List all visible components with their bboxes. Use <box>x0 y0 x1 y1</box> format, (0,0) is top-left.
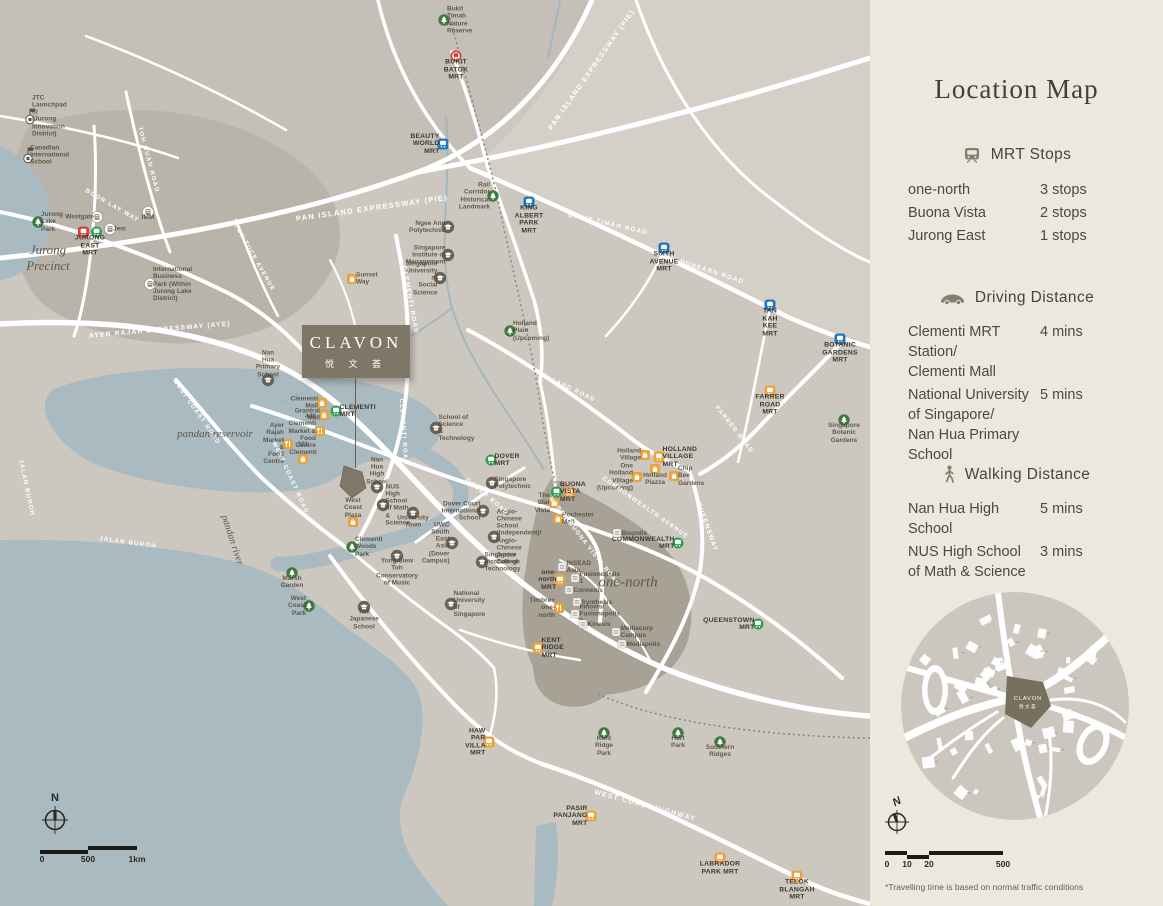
mrt-station-botanic-gardens-mrt: BOTANIC GARDENS MRT <box>835 334 846 345</box>
region-label: one-north <box>598 575 657 592</box>
poi-jurong-lake-park: Jurong Lake Park <box>32 216 44 228</box>
mrt-station-one-north-mrt: one-north MRT <box>555 575 566 586</box>
poi-national-university-of-singapore: National University of Singapore <box>445 598 458 611</box>
compass-north-label: N <box>891 795 904 809</box>
marker-label: The Japanese School <box>349 609 379 631</box>
poi-connexis: Connexis <box>565 586 574 595</box>
marker-label: Timbre+ one-north <box>530 597 555 619</box>
mrt-station-telok-blangah-mrt: TELOK BLANGAH MRT <box>792 871 803 882</box>
marker-label: Bukit Timah Nature Reserve <box>447 5 472 34</box>
mrt-station-clementi-mrt: CLEMENTI MRT <box>331 406 342 417</box>
row-label: National University of Singapore/ Nan Hu… <box>908 385 1036 465</box>
mall-icon <box>317 398 327 408</box>
marker-label: SIXTH AVENUE MRT <box>649 251 678 274</box>
poi-southern-ridges: Southern Ridges <box>714 736 726 748</box>
poi-jtc-launchpad-jurong-innovation-district: JTC Launchpad @ (Jurong Innovation Distr… <box>23 108 37 125</box>
poi-west-coast-park: West Coast Park <box>303 600 315 612</box>
car-icon <box>939 291 966 306</box>
marker-label: Mediacorp Campus <box>621 625 654 640</box>
marker-label: Ngee Ann Polytechnic <box>409 220 445 235</box>
mrt-station-king-albert-park-mrt: KING ALBERT PARK MRT <box>524 197 535 208</box>
marker-label: COMMONWEALTH MRT <box>612 535 675 550</box>
scale-tick: 20 <box>924 859 933 869</box>
marker-label: Hort Park <box>671 735 685 750</box>
row-value: 5 mins <box>1040 385 1083 405</box>
distance-row: one-north3 stops <box>870 180 1163 200</box>
bldg-icon <box>571 574 580 583</box>
poi-jem: Jem <box>104 223 116 235</box>
compass-north-label: N <box>51 792 59 804</box>
poi-mediacorp-campus: Mediacorp Campus <box>612 628 621 637</box>
bldg-icon <box>613 529 622 538</box>
poi-the-japanese-school: The Japanese School <box>358 601 371 614</box>
poi-anglo-chinese-school-independent-anglo-c: Anglo-Chinese School (Independent)/ Angl… <box>488 531 501 544</box>
poi-kinesis: Kinesis <box>579 620 588 629</box>
poi-fusionopolis-1: Fusionopolis 1 <box>571 574 580 583</box>
marker-label: Jurong Lake Park <box>41 211 63 233</box>
site-vicinity-inset-map: CLAVON 悦文荟 <box>901 592 1129 820</box>
marker-label: Holland Plain (Upcoming) <box>513 320 549 342</box>
walking-distance-rows: Nan Hua High School5 minsNUS High School… <box>870 499 1163 585</box>
section-walking-distance: Walking Distance Nan Hua High School5 mi… <box>870 465 1163 484</box>
marker-label: Sunset Way <box>356 272 378 287</box>
marker-label: Mediapolis <box>627 640 661 647</box>
distance-row: Buona Vista2 stops <box>870 203 1163 223</box>
distance-row: National University of Singapore/ Nan Hu… <box>870 385 1163 465</box>
poi-marsh-garden: Marsh Garden <box>286 567 298 579</box>
poi-yong-siew-toh-conservatory-of-music: Yong Siew Toh Conservatory of Music <box>391 550 404 563</box>
mrt-stops-heading: MRT Stops <box>991 146 1072 164</box>
mrt-station-bukit-batok-mrt: BUKIT BATOK MRT <box>451 51 462 62</box>
clavon-location-map-page: { "colors":{"map_bg":"#ccc8c0","sidebar_… <box>0 0 1163 906</box>
poi-ngee-ann-polytechnic: Ngee Ann Polytechnic <box>442 221 455 234</box>
row-value: 1 stops <box>1040 226 1087 246</box>
clavon-site-box: CLAVON 悦 文 荟 <box>302 325 410 378</box>
bldg-icon <box>612 628 621 637</box>
marker-label: Southern Ridges <box>706 744 735 759</box>
scale-tick: 500 <box>81 854 95 864</box>
marker-label: Nan Hua Primary School <box>256 349 280 378</box>
poi-holland-piazza: Holland Piazza <box>650 464 660 474</box>
mrt-stops-rows: one-north3 stopsBuona Vista2 stopsJurong… <box>870 180 1163 249</box>
walking-icon <box>943 465 956 484</box>
mrt-station-sixth-avenue-mrt: SIXTH AVENUE MRT <box>659 243 670 254</box>
marker-label: Singapore Polytechnic <box>495 476 531 491</box>
mrt-station-commonwealth-mrt: COMMONWEALTH MRT <box>673 538 684 549</box>
poi-holland-plain-upcoming: Holland Plain (Upcoming) <box>504 325 516 337</box>
marker-label: BUKIT BATOK MRT <box>444 59 469 82</box>
bldg-icon <box>565 586 574 595</box>
marker-label: Chip Bee Gardens <box>678 465 704 487</box>
poi-grantral-mall: Grantral Mall <box>319 410 329 420</box>
map-scale-bar: 05001km <box>40 846 140 866</box>
mrt-station-beauty-world-mrt: BEAUTY WORLD MRT <box>438 139 449 150</box>
location-map: CLAVON 悦 文 荟 BUKIT BATOK MRTJURONG EAST … <box>0 0 870 906</box>
marker-label: LABRADOR PARK MRT <box>700 861 741 876</box>
poi-imm: IMM <box>142 206 154 218</box>
marker-label: KING ALBERT PARK MRT <box>515 205 544 235</box>
clavon-chinese-name: 悦 文 荟 <box>325 357 387 370</box>
marker-label: FARRER ROAD MRT <box>755 394 784 417</box>
train-icon <box>962 147 982 164</box>
marker-label: Nan Hua High School <box>366 456 388 485</box>
poi-canadian-international-school: Canadian International School <box>21 147 35 164</box>
mrt-station-labrador-park-mrt: LABRADOR PARK MRT <box>715 853 726 864</box>
sidebar-compass: N <box>884 796 910 835</box>
row-value: 5 mins <box>1040 499 1083 519</box>
compass-icon <box>40 805 70 835</box>
marker-label: Westgate <box>65 213 94 220</box>
marker-label: BEAUTY WORLD MRT <box>410 133 439 156</box>
poi-clementi-woods-park: Clementi Woods Park <box>346 541 358 553</box>
marker-label: School of Science & Technology <box>439 413 475 442</box>
row-label: one-north <box>908 180 970 200</box>
marker-label: National University of Singapore <box>454 589 486 618</box>
marker-label: BUONA VISTA MRT <box>560 481 586 504</box>
row-label: Jurong East <box>908 226 985 246</box>
map-compass: N <box>40 792 70 835</box>
food-icon <box>315 426 325 436</box>
driving-distance-heading: Driving Distance <box>975 289 1094 307</box>
clavon-leader-line <box>355 378 356 468</box>
marker-label: JTC Launchpad @ (Jurong Innovation Distr… <box>32 94 67 138</box>
marker-label: Singapore Botanic Gardens <box>828 422 860 444</box>
marker-label: Dover Court International School <box>441 500 480 522</box>
marker-label: CLEMENTI MRT <box>340 403 376 418</box>
section-driving-distance: Driving Distance Clementi MRT Station/ C… <box>870 289 1163 307</box>
poi-west-coast-plaza: West Coast Plaza <box>348 517 358 527</box>
region-label: Jurong Precinct <box>26 242 70 274</box>
poi-international-business-park-within-juron: International Business Park (Within Juro… <box>144 278 156 290</box>
marker-label: one-north MRT <box>538 569 556 592</box>
page-title: Location Map <box>870 74 1163 105</box>
distance-row: Jurong East1 stops <box>870 226 1163 246</box>
poi-timbre-one-north: Timbre+ one-north <box>554 603 564 613</box>
distance-row: Nan Hua High School5 mins <box>870 499 1163 539</box>
marker-label: Jem <box>113 225 126 232</box>
poi-bukit-timah-nature-reserve: Bukit Timah Nature Reserve <box>438 14 450 26</box>
marker-label: DOVER MRT <box>495 452 520 467</box>
food-icon <box>283 439 293 449</box>
poi-hort-park: Hort Park <box>672 727 684 739</box>
scale-tick: 1km <box>128 854 145 864</box>
mrt-station-tan-kah-kee-mrt: TAN KAH KEE MRT <box>765 300 776 311</box>
bldg-icon <box>579 620 588 629</box>
poi-rail-corridor-historical-landmark: Rail Corridor Historical Landmark <box>487 190 499 202</box>
compass-icon <box>884 809 910 835</box>
walking-distance-heading: Walking Distance <box>965 466 1091 484</box>
marker-label: KENT RIDGE MRT <box>542 637 565 660</box>
poi-321-clementi: 321 Clementi <box>298 454 308 464</box>
poi-singapore-polytechnic: Singapore Polytechnic <box>486 477 499 490</box>
poi-clementi-mall: Clementi Mall <box>317 398 327 408</box>
row-label: Clementi MRT Station/ Clementi Mall <box>908 322 1036 382</box>
row-label: NUS High School of Math & Science <box>908 542 1026 582</box>
mrt-station-dover-mrt: DOVER MRT <box>486 455 497 466</box>
mall-icon <box>319 410 329 420</box>
poi-innovis-fusionopolis-2: Innovis/ Fusionopolis 2 <box>571 610 580 619</box>
mrt-station-haw-par-villa-mrt: HAW PAR VILLA MRT <box>484 737 495 748</box>
food-icon <box>554 603 564 613</box>
mrt-station-pasir-panjang-mrt: PASIR PANJANG MRT <box>586 811 597 822</box>
bldg-icon <box>618 640 627 649</box>
mall-icon <box>632 472 642 482</box>
marker-label: Holland Village <box>617 448 641 463</box>
marker-label: West Coast Park <box>288 595 306 617</box>
distance-row: Clementi MRT Station/ Clementi Mall4 min… <box>870 322 1163 382</box>
mrt-station-jurong-east-mrt: JURONG EAST MRT <box>78 227 102 238</box>
bldg-icon <box>571 610 580 619</box>
row-value: 3 stops <box>1040 180 1087 200</box>
poi-westgate: Westgate <box>91 211 103 223</box>
scale-tick: 0 <box>885 859 890 869</box>
section-mrt-stops: MRT Stops one-north3 stopsBuona Vista2 s… <box>870 146 1163 164</box>
marker-label: Kent Ridge Park <box>595 735 613 757</box>
marker-label: Marsh Garden <box>281 575 304 590</box>
poi-university-town: University Town <box>407 507 420 520</box>
poi-mediapolis: Mediapolis <box>618 640 627 649</box>
marker-label: Biopolis <box>622 529 648 536</box>
scale-tick: 0 <box>40 854 45 864</box>
marker-label: The Star Vista <box>535 492 550 514</box>
marker-label: Holland Piazza <box>643 472 667 487</box>
scale-tick: 10 <box>902 859 911 869</box>
marker-label: Rail Corridor Historical Landmark <box>459 181 490 210</box>
marker-label: West Coast Plaza <box>344 497 362 519</box>
scale-tick: 500 <box>996 859 1010 869</box>
poi-448-clementi-market-food-centre: 448 Clementi Market & Food Centre <box>315 426 325 436</box>
row-label: Buona Vista <box>908 203 986 223</box>
inset-site-name: CLAVON <box>1014 696 1042 702</box>
inset-site-chinese-name: 悦文荟 <box>1019 703 1037 710</box>
clavon-name: CLAVON <box>310 333 403 353</box>
marker-label: IMM <box>142 214 155 221</box>
mrt-station-holland-village-mrt: HOLLAND VILLAGE MRT <box>654 452 665 463</box>
sidebar-scale-bar: 01020500 <box>885 851 1010 871</box>
poi-uwc-south-east-asia-dover-campus: UWC South East Asia (Dover Campus) <box>446 537 459 550</box>
poi-nan-hua-high-school: Nan Hua High School <box>371 481 384 494</box>
mrt-station-queenstown-mrt: QUEENSTOWN MRT <box>753 619 764 630</box>
bldg-icon <box>558 563 567 572</box>
marker-label: BOTANIC GARDENS MRT <box>822 342 857 365</box>
poi-chip-bee-gardens: Chip Bee Gardens <box>669 471 679 481</box>
poi-nan-hua-primary-school: Nan Hua Primary School <box>262 374 275 387</box>
marker-label: QUEENSTOWN MRT <box>703 616 754 631</box>
marker-label: TELOK BLANGAH MRT <box>779 879 814 902</box>
marker-label: Clementi Woods Park <box>355 536 382 558</box>
poi-nus-high-school-of-math-science: NUS High School of Math & Science <box>377 499 390 512</box>
marker-label: PASIR PANJANG MRT <box>553 805 587 828</box>
row-value: 3 mins <box>1040 542 1083 562</box>
poi-dover-court-international-school: Dover Court International School <box>477 505 490 518</box>
marker-label: Yong Siew Toh Conservatory of Music <box>376 558 418 587</box>
poi-singapore-institute-of-management: Singapore Institute of Management <box>442 249 455 262</box>
mrt-station-farrer-road-mrt: FARRER ROAD MRT <box>765 386 776 397</box>
marker-label: HAW PAR VILLA MRT <box>465 727 485 757</box>
marker-label: TAN KAH KEE MRT <box>762 308 777 338</box>
poi-sunset-way: Sunset Way <box>347 274 357 284</box>
marker-label: Canadian International School <box>30 144 69 166</box>
poi-one-holland-village-upcoming: One Holland Village (Upcoming) <box>632 472 642 482</box>
row-value: 2 stops <box>1040 203 1087 223</box>
marker-label: University Town <box>397 515 428 530</box>
mrt-station-kent-ridge-mrt: KENT RIDGE MRT <box>533 643 544 654</box>
marker-label: Kinesis <box>588 620 611 627</box>
marker-label: International Business Park (Within Juro… <box>153 266 192 302</box>
region-label: pandan reservoir <box>177 428 253 440</box>
marker-label: JURONG EAST MRT <box>75 235 105 258</box>
inset-map-graphic: CLAVON 悦文荟 <box>901 592 1129 820</box>
footnote: *Travelling time is based on normal traf… <box>885 882 1083 892</box>
mall-icon <box>640 450 650 460</box>
poi-holland-village: Holland Village <box>640 450 650 460</box>
poi-school-of-science-technology: School of Science & Technology <box>430 422 443 435</box>
info-sidebar: Location Map MRT Stops one-north3 stopsB… <box>870 0 1163 906</box>
driving-distance-rows: Clementi MRT Station/ Clementi Mall4 min… <box>870 322 1163 468</box>
marker-label: Singapore Institute of Technology <box>485 551 521 573</box>
poi-ayer-rajah-market-food-centre: Ayer Rajah Market & Food Centre <box>283 439 293 449</box>
distance-row: NUS High School of Math & Science3 mins <box>870 542 1163 582</box>
row-value: 4 mins <box>1040 322 1083 342</box>
poi-singapore-institute-of-technology: Singapore Institute of Technology <box>476 556 489 569</box>
poi-biopolis: Biopolis <box>613 529 622 538</box>
mrt-station-buona-vista-mrt: BUONA VISTA MRT <box>551 487 575 498</box>
poi-singapore-university-of-social-science: Singapore University of Social Science <box>434 272 447 285</box>
poi-singapore-botanic-gardens: Singapore Botanic Gardens <box>838 414 850 426</box>
poi-kent-ridge-park: Kent Ridge Park <box>598 727 610 739</box>
row-label: Nan Hua High School <box>908 499 1036 539</box>
poi-insead-asia: INSEAD Asia <box>558 563 567 572</box>
